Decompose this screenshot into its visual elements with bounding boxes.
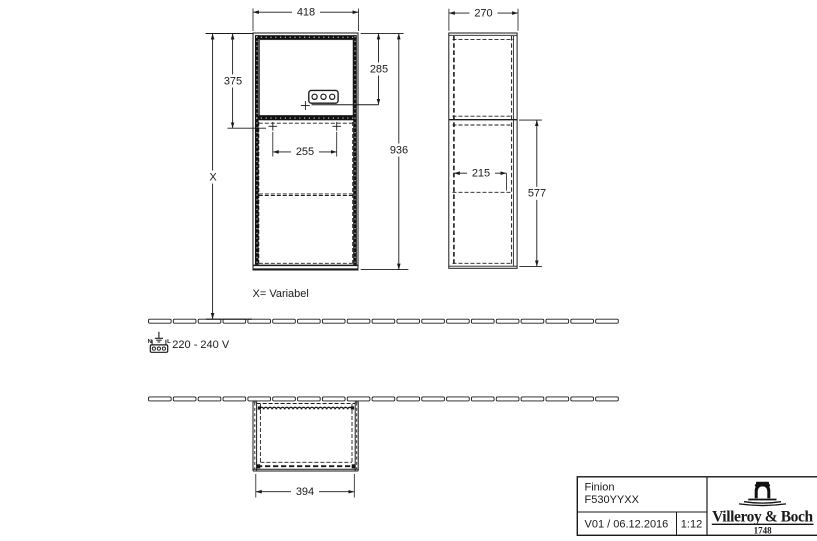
svg-text:N: N xyxy=(148,339,152,345)
svg-text:394: 394 xyxy=(296,486,314,498)
svg-text:X: X xyxy=(209,171,217,183)
svg-text:1:12: 1:12 xyxy=(681,519,702,531)
svg-text:V01 / 06.12.2016: V01 / 06.12.2016 xyxy=(585,519,669,531)
svg-text:255: 255 xyxy=(296,146,314,158)
svg-text:F530YYXX: F530YYXX xyxy=(585,494,640,506)
svg-text:285: 285 xyxy=(370,63,388,75)
svg-text:Finion: Finion xyxy=(585,482,615,494)
svg-text:1748: 1748 xyxy=(754,526,773,536)
svg-text:936: 936 xyxy=(390,144,408,156)
svg-text:215: 215 xyxy=(472,168,490,180)
svg-text:Villeroy & Boch: Villeroy & Boch xyxy=(712,509,813,526)
svg-text:375: 375 xyxy=(224,75,242,87)
svg-text:220 - 240 V: 220 - 240 V xyxy=(172,339,230,351)
svg-text:X= Variabel: X= Variabel xyxy=(253,288,309,300)
svg-text:L: L xyxy=(167,339,171,345)
svg-text:270: 270 xyxy=(474,7,492,19)
svg-text:577: 577 xyxy=(528,188,546,200)
svg-text:418: 418 xyxy=(297,7,315,19)
